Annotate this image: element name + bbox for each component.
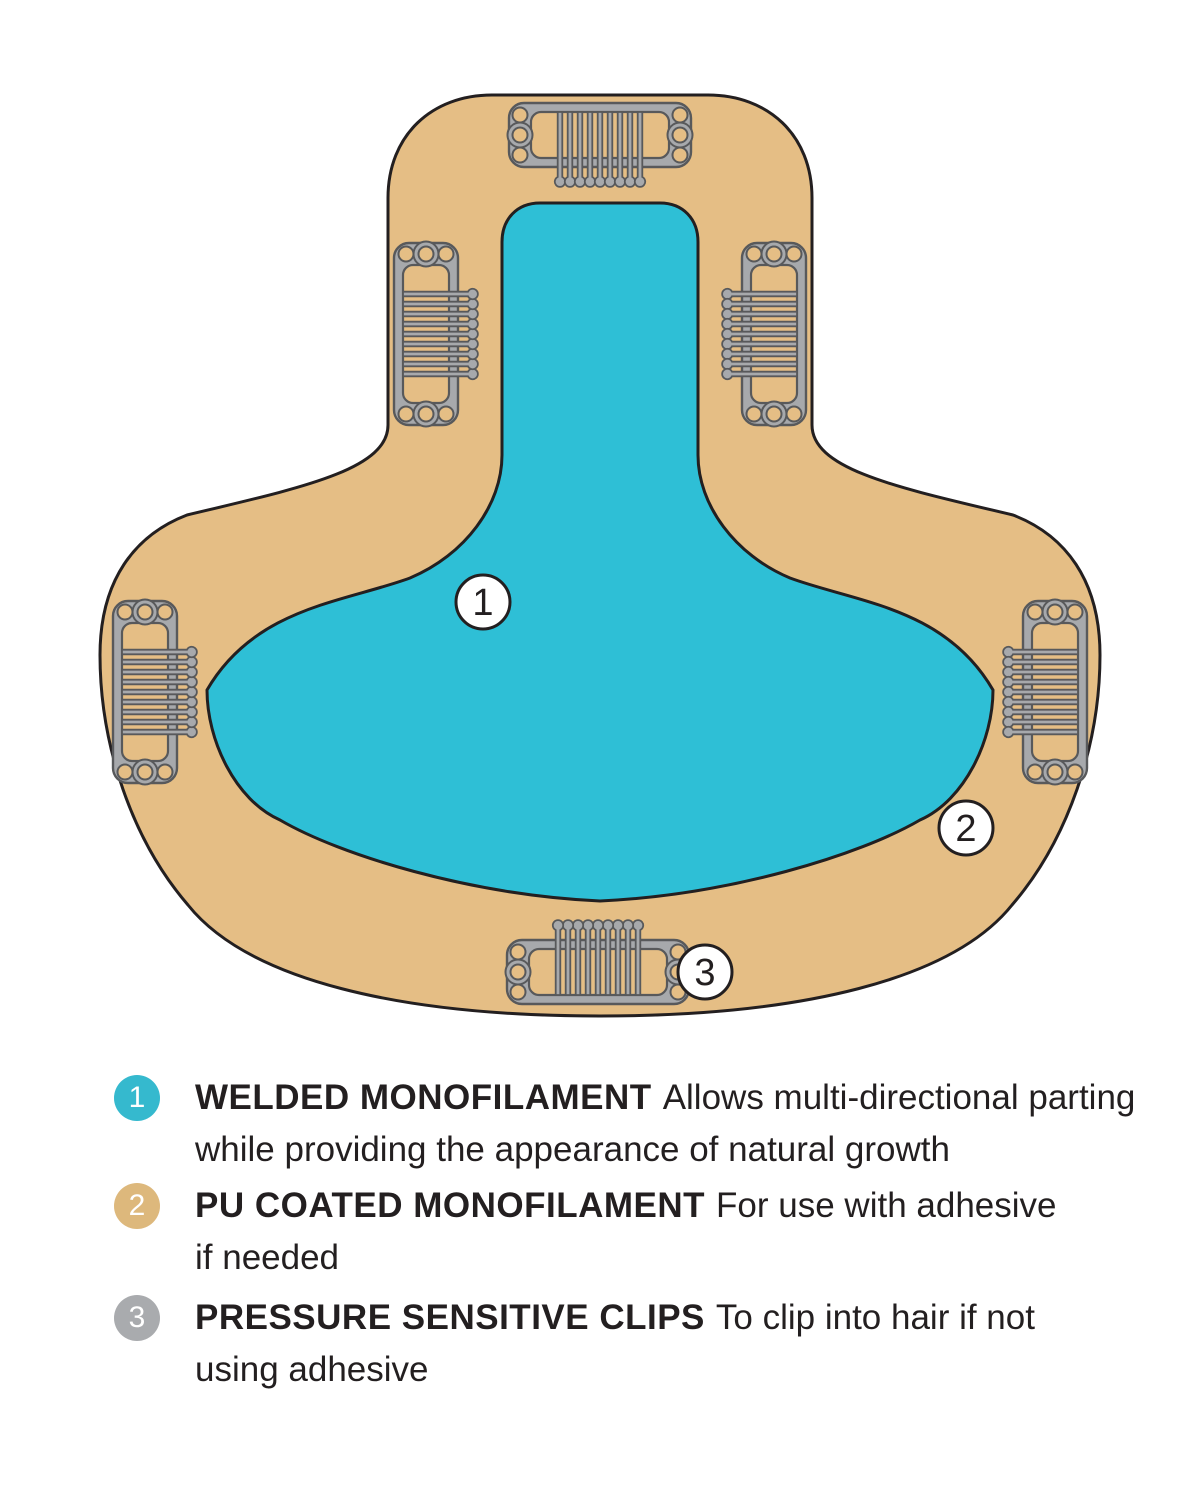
legend-desc-1-line2: while providing the appearance of natura…: [195, 1124, 1135, 1176]
callout-2-number: 2: [955, 808, 976, 850]
legend-line: PU COATED MONOFILAMENTFor use with adhes…: [195, 1180, 1057, 1232]
legend-term-1: WELDED MONOFILAMENT: [195, 1078, 652, 1117]
callout-3-number: 3: [694, 952, 715, 994]
legend-text-1: WELDED MONOFILAMENTAllows multi-directio…: [195, 1072, 1135, 1176]
callout-2: 2: [939, 801, 993, 855]
callout-3: 3: [678, 945, 732, 999]
legend-desc-2-line2: if needed: [195, 1232, 1057, 1284]
legend-text-3: PRESSURE SENSITIVE CLIPSTo clip into hai…: [195, 1292, 1035, 1396]
legend-term-2: PU COATED MONOFILAMENT: [195, 1186, 705, 1225]
legend-badge-3: 3: [114, 1295, 160, 1341]
legend-badge-1: 1: [114, 1075, 160, 1121]
legend-badge-1-number: 1: [129, 1081, 146, 1115]
legend-badge-2: 2: [114, 1183, 160, 1229]
legend-line: WELDED MONOFILAMENTAllows multi-directio…: [195, 1072, 1135, 1124]
legend-term-3: PRESSURE SENSITIVE CLIPS: [195, 1298, 705, 1337]
legend-item-pu-coated-monofilament: 2 PU COATED MONOFILAMENTFor use with adh…: [114, 1180, 1057, 1284]
hairpiece-base-diagram: 1 2 3: [0, 0, 1200, 1040]
legend-desc-1-line1: Allows multi-directional parting: [663, 1078, 1136, 1117]
callout-1: 1: [456, 575, 510, 629]
legend-desc-3-line2: using adhesive: [195, 1344, 1035, 1396]
legend-item-welded-monofilament: 1 WELDED MONOFILAMENTAllows multi-direct…: [114, 1072, 1135, 1176]
legend-line: PRESSURE SENSITIVE CLIPSTo clip into hai…: [195, 1292, 1035, 1344]
legend-desc-3-line1: To clip into hair if not: [716, 1298, 1035, 1337]
legend-text-2: PU COATED MONOFILAMENTFor use with adhes…: [195, 1180, 1057, 1284]
legend-badge-2-number: 2: [129, 1189, 146, 1223]
legend-desc-2-line1: For use with adhesive: [716, 1186, 1056, 1225]
legend-item-pressure-sensitive-clips: 3 PRESSURE SENSITIVE CLIPSTo clip into h…: [114, 1292, 1035, 1396]
callout-1-number: 1: [472, 582, 493, 624]
legend-badge-3-number: 3: [129, 1301, 146, 1335]
diagram-svg: 1 2 3: [0, 0, 1200, 1040]
